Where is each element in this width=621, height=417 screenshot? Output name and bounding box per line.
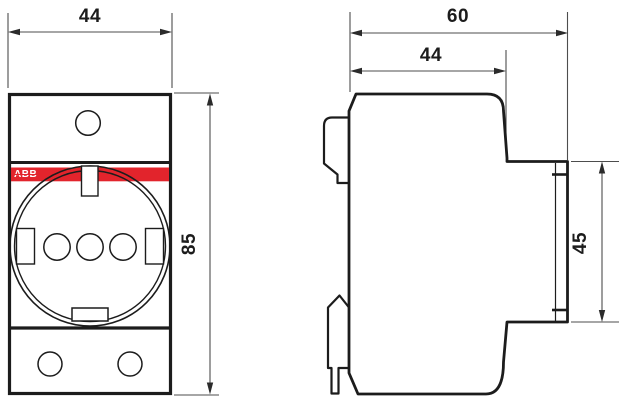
socket-hole-center — [77, 234, 103, 260]
socket-earth-tab — [82, 166, 99, 196]
front-height-dimension-label: 85 — [179, 214, 201, 274]
side-body-profile — [349, 94, 568, 394]
socket-hole-left — [44, 234, 70, 260]
front-bottom-hole-right — [118, 352, 142, 376]
side-din-clip-upper — [324, 118, 350, 184]
drawing-linework — [0, 0, 621, 417]
technical-drawing-canvas: 44 85 60 44 45 ABB — [0, 0, 621, 417]
front-bottom-hole-left — [38, 352, 62, 376]
side-body-depth-dimension-label: 44 — [401, 45, 461, 67]
side-overall-depth-dimension-label: 60 — [428, 6, 488, 28]
socket-notch-left — [17, 229, 35, 265]
socket-bottom-slot — [72, 308, 108, 321]
front-width-dimension-label: 44 — [60, 6, 120, 28]
side-faceplate-height-dimension-label: 45 — [570, 213, 592, 273]
socket-notch-right — [146, 229, 164, 265]
socket-hole-right — [110, 234, 136, 260]
front-top-screw-hole — [76, 111, 101, 136]
front-view — [9, 95, 171, 394]
side-view — [324, 94, 568, 394]
abb-logo-stripe-line — [14, 174, 39, 175]
side-din-clip-lower — [328, 296, 349, 394]
